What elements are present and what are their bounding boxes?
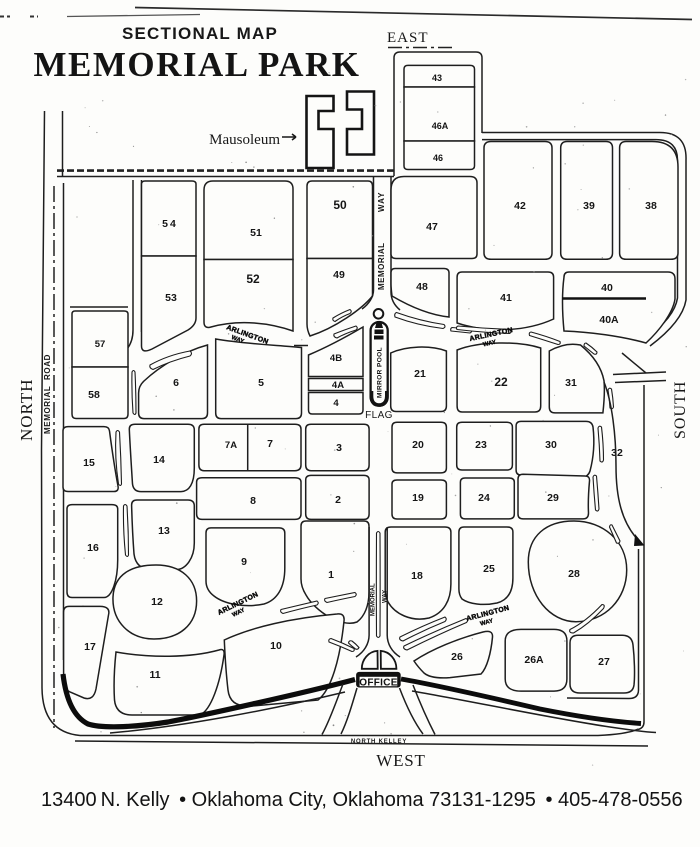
svg-text:46A: 46A — [432, 121, 449, 131]
svg-text:NORTH KELLEY: NORTH KELLEY — [351, 739, 407, 745]
svg-text:6: 6 — [173, 377, 179, 389]
svg-text:42: 42 — [514, 200, 526, 212]
svg-text:22: 22 — [494, 375, 508, 389]
svg-text:MEMORIAL: MEMORIAL — [371, 583, 377, 616]
svg-text:8: 8 — [250, 495, 256, 507]
svg-text:32: 32 — [611, 447, 623, 459]
svg-text:13: 13 — [158, 525, 170, 537]
svg-text:18: 18 — [411, 570, 423, 582]
svg-text:52: 52 — [246, 272, 260, 286]
svg-text:41: 41 — [500, 292, 512, 304]
svg-text:53: 53 — [165, 292, 177, 304]
svg-text:7: 7 — [267, 438, 273, 450]
svg-text:NORTH: NORTH — [17, 378, 36, 441]
svg-text:23: 23 — [475, 439, 487, 451]
svg-text:48: 48 — [416, 281, 428, 293]
svg-text:40A: 40A — [599, 314, 619, 326]
svg-text:SOUTH: SOUTH — [672, 381, 689, 439]
svg-text:WAY: WAY — [377, 192, 386, 213]
svg-text:58: 58 — [88, 389, 100, 401]
svg-text:30: 30 — [545, 439, 557, 451]
svg-text:10: 10 — [270, 640, 282, 652]
svg-text:25: 25 — [483, 563, 495, 575]
svg-text:4: 4 — [333, 398, 339, 409]
svg-text:51: 51 — [250, 227, 262, 239]
svg-text:16: 16 — [87, 542, 99, 554]
svg-text:46: 46 — [433, 153, 443, 163]
svg-text:24: 24 — [478, 492, 490, 504]
svg-text:MIRROR POOL: MIRROR POOL — [377, 347, 384, 398]
svg-text:13400N. Kelly • Oklahoma Cit: 13400N. Kelly • Oklahoma City, Oklahoma … — [41, 789, 683, 811]
svg-text:2: 2 — [335, 494, 341, 506]
svg-text:MEMORIAL ROAD: MEMORIAL ROAD — [43, 354, 52, 434]
svg-text:12: 12 — [151, 596, 163, 608]
svg-text:14: 14 — [153, 454, 165, 466]
svg-text:26A: 26A — [524, 654, 544, 666]
svg-text:21: 21 — [414, 368, 426, 380]
svg-text:WAY: WAY — [383, 590, 389, 603]
svg-text:28: 28 — [568, 568, 580, 580]
svg-text:11: 11 — [149, 669, 160, 681]
svg-text:47: 47 — [426, 221, 438, 233]
svg-text:1: 1 — [328, 569, 334, 581]
svg-text:27: 27 — [598, 656, 610, 668]
svg-text:54: 54 — [162, 218, 178, 230]
svg-text:5: 5 — [258, 377, 264, 389]
svg-text:49: 49 — [333, 269, 345, 281]
svg-text:Mausoleum: Mausoleum — [209, 132, 280, 148]
svg-text:7A: 7A — [225, 440, 237, 451]
svg-text:17: 17 — [84, 641, 96, 653]
svg-text:FLAG: FLAG — [365, 410, 393, 421]
svg-text:WEST: WEST — [376, 751, 425, 770]
svg-text:SECTIONAL MAP: SECTIONAL MAP — [122, 24, 278, 43]
svg-text:EAST: EAST — [387, 30, 429, 46]
svg-text:MEMORIAL PARK: MEMORIAL PARK — [33, 45, 360, 84]
svg-text:OFFICE: OFFICE — [359, 677, 397, 688]
svg-text:19: 19 — [412, 492, 424, 504]
svg-text:38: 38 — [645, 200, 657, 212]
svg-text:31: 31 — [565, 377, 577, 389]
svg-text:3: 3 — [336, 442, 342, 454]
svg-text:26: 26 — [451, 651, 463, 663]
svg-text:39: 39 — [583, 200, 595, 212]
svg-text:57: 57 — [95, 339, 106, 350]
svg-text:20: 20 — [412, 439, 424, 451]
svg-text:4B: 4B — [330, 353, 342, 364]
svg-text:43: 43 — [432, 73, 442, 83]
svg-text:4A: 4A — [332, 380, 344, 391]
svg-text:40: 40 — [601, 282, 613, 294]
svg-text:9: 9 — [241, 556, 247, 568]
svg-text:MEMORIAL: MEMORIAL — [377, 242, 386, 290]
svg-text:50: 50 — [333, 198, 347, 212]
svg-text:15: 15 — [83, 457, 95, 469]
svg-text:29: 29 — [547, 492, 559, 504]
